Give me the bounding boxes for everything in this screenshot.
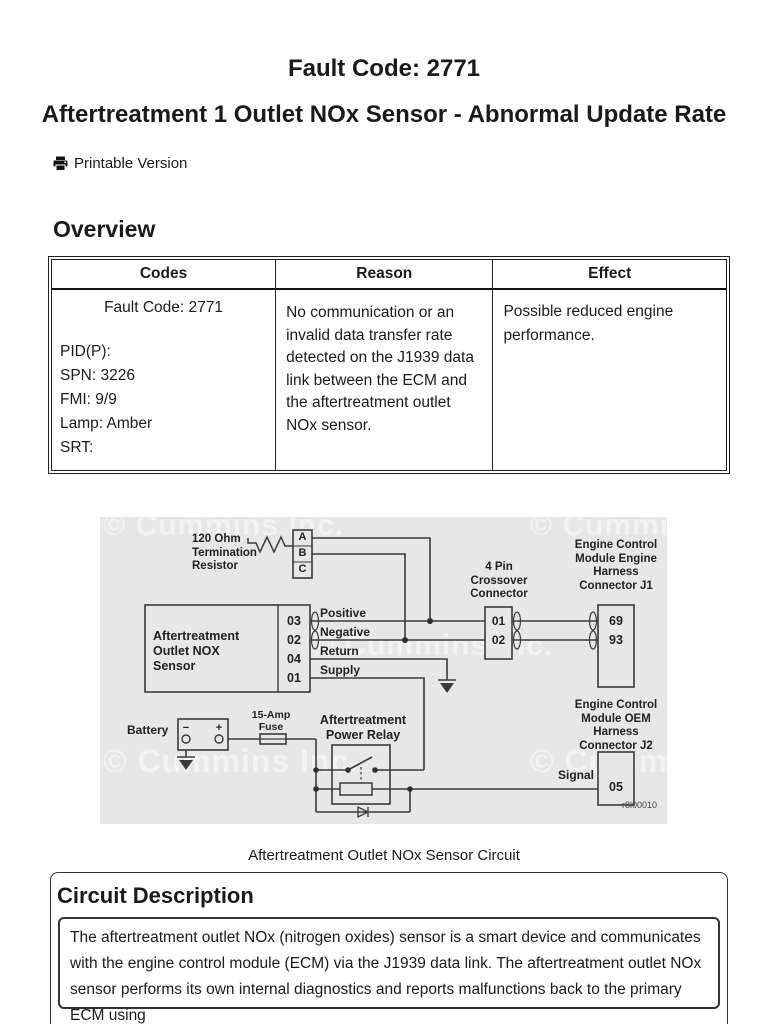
reason-cell: No communication or an invalid data tran… <box>276 289 493 471</box>
sensor-pin-04: 04 <box>278 652 310 666</box>
wire-label-return: Return <box>320 645 359 659</box>
page-subtitle: Aftertreatment 1 Outlet NOx Sensor - Abn… <box>0 101 768 129</box>
crossover-pin-01: 01 <box>485 614 512 628</box>
codes-cell: Fault Code: 2771 PID(P):SPN: 3226FMI: 9/… <box>52 289 276 471</box>
j1-pin-93: 93 <box>598 633 634 647</box>
j1-pin-69: 69 <box>598 614 634 628</box>
codes-fault-code: Fault Code: 2771 <box>60 298 267 318</box>
fault-code-table: Codes Reason Effect Fault Code: 2771 PID… <box>48 256 730 474</box>
termination-pin-b: B <box>293 547 312 559</box>
wire-label-positive: Positive <box>320 607 366 621</box>
printable-version-link[interactable]: Printable Version <box>53 155 187 172</box>
wire-label-signal: Signal <box>548 769 594 783</box>
crossover-connector-label: 4 PinCrossoverConnector <box>453 561 545 602</box>
page-title: Fault Code: 2771 <box>0 55 768 83</box>
j1-connector-label: Engine ControlModule EngineHarnessConnec… <box>564 539 667 593</box>
power-relay-symbol <box>332 745 390 804</box>
ground-symbol-battery <box>177 757 195 770</box>
j2-connector-box <box>598 752 634 805</box>
ground-symbol-return <box>438 680 456 693</box>
circuit-description-heading: Circuit Description <box>51 873 727 909</box>
printer-icon <box>53 156 68 171</box>
diagram-caption: Aftertreatment Outlet NOx Sensor Circuit <box>0 847 768 865</box>
relay-switch-blade <box>348 757 372 770</box>
codes-detail-lines: PID(P):SPN: 3226FMI: 9/9Lamp: AmberSRT: <box>60 340 267 460</box>
battery-minus-sign: − <box>180 722 192 734</box>
wire-label-supply: Supply <box>320 664 360 678</box>
drawing-reference-number: r8l00010 <box>622 800 657 810</box>
battery-plus-sign: + <box>213 722 225 734</box>
sensor-pin-03: 03 <box>278 614 310 628</box>
battery-label: Battery <box>127 724 168 738</box>
printable-version-label: Printable Version <box>74 155 187 172</box>
termination-pin-a: A <box>293 531 312 543</box>
sensor-pin-01: 01 <box>278 671 310 685</box>
wire-label-negative: Negative <box>320 626 370 640</box>
relay-coil <box>340 783 372 795</box>
column-header-effect: Effect <box>493 260 727 290</box>
fuse-label: 15-AmpFuse <box>246 710 296 733</box>
sensor-circuit-diagram: © Cummins Inc. © Cummins Inc. © Cummins … <box>100 517 667 824</box>
battery-positive-terminal <box>215 735 223 743</box>
circuit-description-section: Circuit Description The aftertreatment o… <box>50 872 728 1024</box>
circuit-description-text: The aftertreatment outlet NOx (nitrogen … <box>58 917 720 1009</box>
table-header-row: Codes Reason Effect <box>52 260 727 290</box>
power-relay-label: AftertreatmentPower Relay <box>316 713 410 742</box>
battery-negative-terminal <box>182 735 190 743</box>
column-header-reason: Reason <box>276 260 493 290</box>
termination-pin-c: C <box>293 563 312 575</box>
column-header-codes: Codes <box>52 260 276 290</box>
effect-cell: Possible reduced engine performance. <box>493 289 727 471</box>
nox-sensor-label: AftertreatmentOutlet NOXSensor <box>153 629 273 674</box>
crossover-pin-02: 02 <box>485 633 512 647</box>
j2-pin-05: 05 <box>598 780 634 794</box>
sensor-pin-02: 02 <box>278 633 310 647</box>
table-body-row: Fault Code: 2771 PID(P):SPN: 3226FMI: 9/… <box>52 289 727 471</box>
overview-heading: Overview <box>53 216 768 243</box>
j2-connector-label: Engine ControlModule OEMHarnessConnector… <box>564 699 667 753</box>
termination-resistor-label: 120 OhmTerminationResistor <box>192 533 284 574</box>
